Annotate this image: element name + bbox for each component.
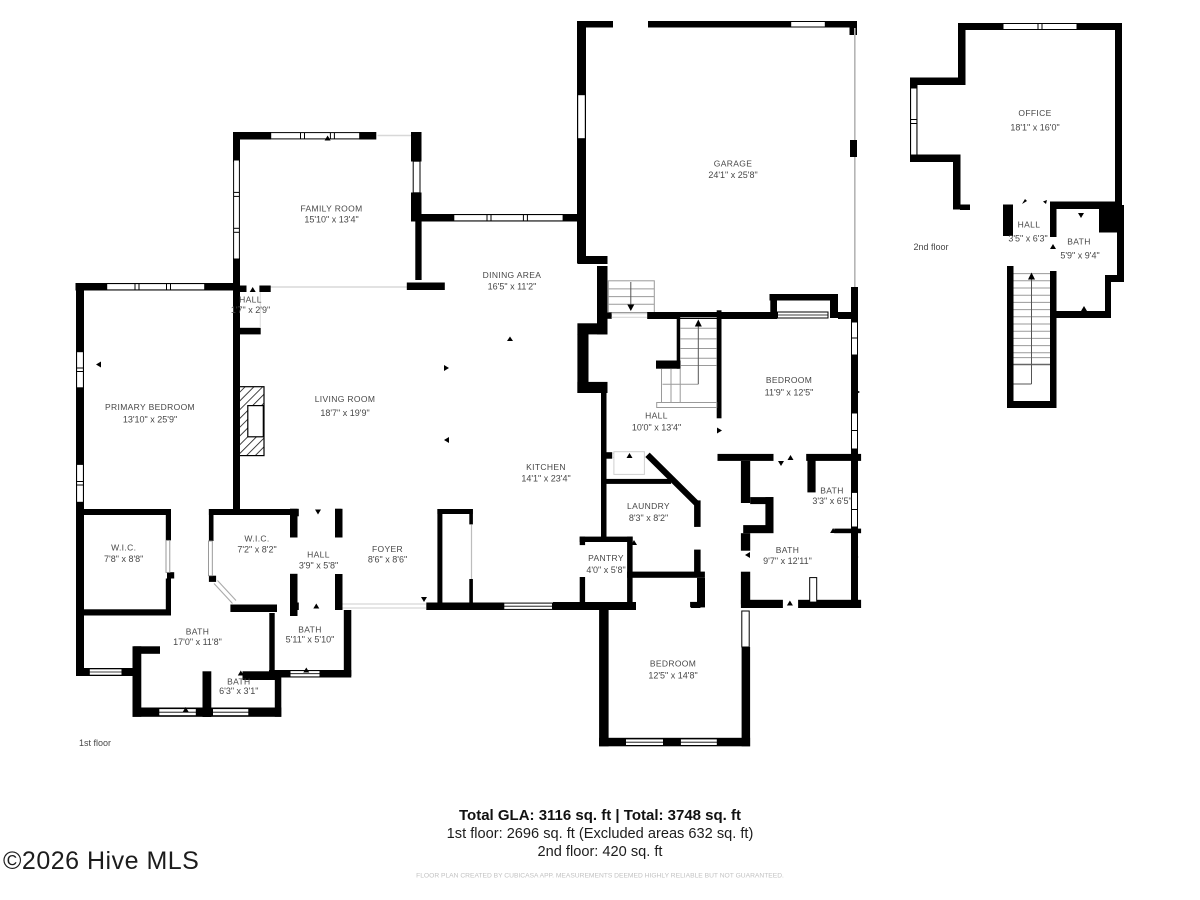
svg-text:BEDROOM: BEDROOM (650, 659, 696, 669)
svg-text:FOYER: FOYER (372, 544, 403, 554)
svg-text:17'0" x 11'8": 17'0" x 11'8" (173, 637, 222, 647)
svg-text:©2026 Hive MLS: ©2026 Hive MLS (3, 847, 199, 875)
svg-text:KITCHEN: KITCHEN (526, 462, 566, 472)
svg-text:2nd floor: 420 sq. ft: 2nd floor: 420 sq. ft (538, 844, 663, 860)
svg-text:13'10" x 25'9": 13'10" x 25'9" (123, 414, 177, 424)
svg-text:4'0" x 5'8": 4'0" x 5'8" (586, 565, 625, 575)
svg-text:FAMILY ROOM: FAMILY ROOM (300, 203, 362, 213)
svg-text:LIVING ROOM: LIVING ROOM (315, 394, 376, 404)
svg-text:1st floor: 2696 sq. ft (Exclud: 1st floor: 2696 sq. ft (Excluded areas 6… (447, 826, 754, 842)
svg-text:7'2" x 8'2": 7'2" x 8'2" (237, 544, 276, 554)
svg-text:18'7" x 19'9": 18'7" x 19'9" (320, 408, 369, 418)
svg-text:BEDROOM: BEDROOM (766, 375, 812, 385)
svg-text:8'6" x 8'6": 8'6" x 8'6" (368, 555, 407, 565)
svg-text:HALL: HALL (307, 550, 330, 560)
svg-text:PANTRY: PANTRY (588, 553, 624, 563)
svg-text:3'3" x 6'5": 3'3" x 6'5" (812, 496, 851, 506)
svg-text:3'5" x 6'3": 3'5" x 6'3" (1008, 233, 1047, 243)
svg-text:BATH: BATH (186, 627, 209, 637)
svg-text:5'9" x 9'4": 5'9" x 9'4" (1060, 250, 1099, 260)
svg-text:Total GLA: 3116 sq. ft | Total: Total GLA: 3116 sq. ft | Total: 3748 sq.… (459, 807, 741, 824)
svg-text:HALL: HALL (239, 295, 262, 305)
svg-text:12'5" x 14'8": 12'5" x 14'8" (648, 671, 697, 681)
svg-text:HALL: HALL (1018, 219, 1041, 229)
svg-text:10'0" x 13'4": 10'0" x 13'4" (632, 423, 681, 433)
svg-text:2nd floor: 2nd floor (913, 242, 948, 252)
svg-text:8'3" x 8'2": 8'3" x 8'2" (629, 513, 668, 523)
svg-text:1'7" x 2'9": 1'7" x 2'9" (231, 305, 270, 315)
svg-text:FLOOR PLAN CREATED BY CUBICASA: FLOOR PLAN CREATED BY CUBICASA APP. MEAS… (416, 873, 784, 880)
svg-text:14'1" x 23'4": 14'1" x 23'4" (521, 474, 570, 484)
svg-text:7'8" x 8'8": 7'8" x 8'8" (104, 554, 143, 564)
svg-text:W.I.C.: W.I.C. (244, 534, 269, 544)
svg-text:W.I.C.: W.I.C. (111, 543, 136, 553)
svg-text:LAUNDRY: LAUNDRY (627, 501, 670, 511)
svg-text:BATH: BATH (820, 486, 843, 496)
svg-text:GARAGE: GARAGE (714, 159, 752, 169)
svg-text:1st floor: 1st floor (79, 738, 111, 748)
svg-text:24'1" x 25'8": 24'1" x 25'8" (708, 170, 757, 180)
svg-text:OFFICE: OFFICE (1018, 108, 1051, 118)
svg-text:15'10" x 13'4": 15'10" x 13'4" (304, 215, 358, 225)
svg-text:BATH: BATH (1067, 236, 1090, 246)
svg-text:16'5" x 11'2": 16'5" x 11'2" (488, 282, 537, 292)
svg-text:18'1" x 16'0": 18'1" x 16'0" (1010, 123, 1059, 133)
svg-text:DINING AREA: DINING AREA (483, 270, 542, 280)
svg-text:5'11" x 5'10": 5'11" x 5'10" (286, 635, 335, 645)
svg-text:3'9" x 5'8": 3'9" x 5'8" (299, 561, 338, 571)
svg-text:11'9" x 12'5": 11'9" x 12'5" (765, 388, 814, 398)
svg-text:BATH: BATH (298, 624, 321, 634)
svg-text:6'3" x 3'1": 6'3" x 3'1" (219, 686, 258, 696)
svg-text:PRIMARY BEDROOM: PRIMARY BEDROOM (105, 402, 195, 412)
svg-text:9'7" x 12'11": 9'7" x 12'11" (763, 556, 812, 566)
svg-text:BATH: BATH (776, 545, 799, 555)
svg-text:HALL: HALL (645, 411, 668, 421)
